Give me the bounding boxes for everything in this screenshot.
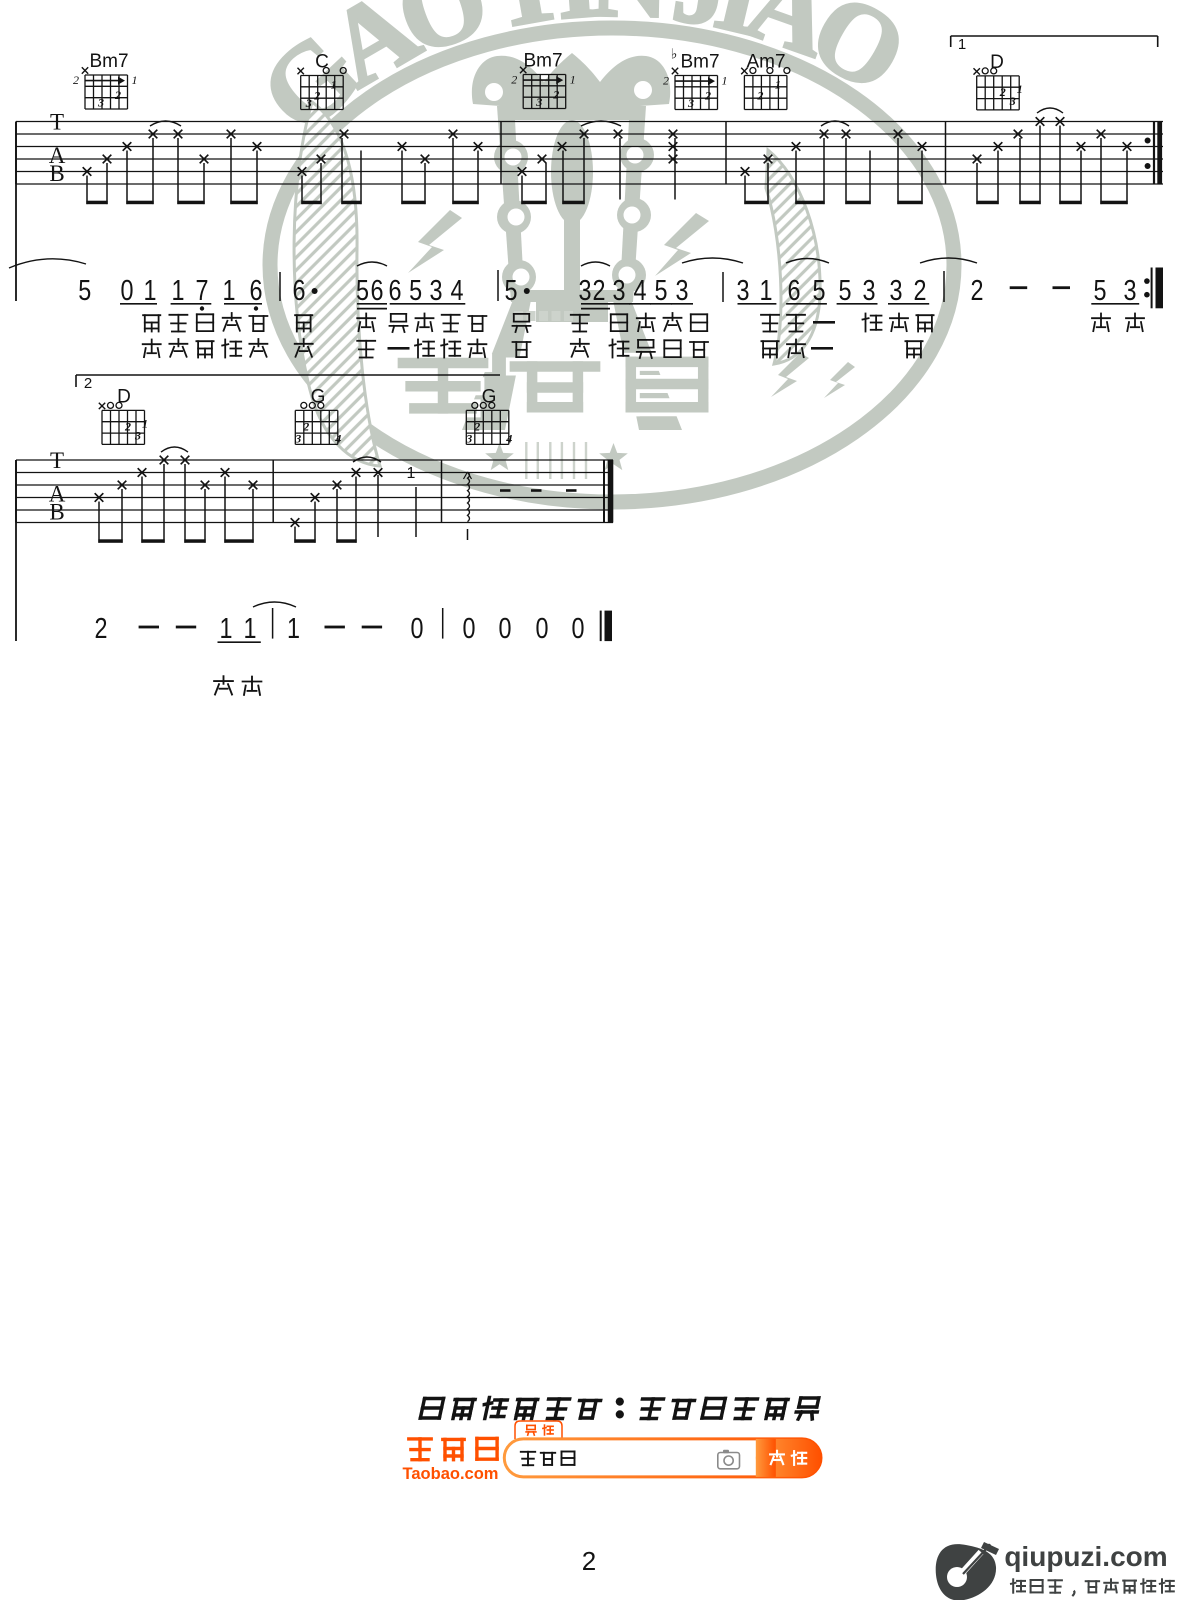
svg-text:4: 4: [505, 431, 512, 445]
svg-text:6: 6: [250, 275, 263, 307]
svg-text:2: 2: [971, 275, 984, 307]
svg-text:1: 1: [172, 275, 185, 307]
svg-text:3: 3: [863, 275, 876, 307]
svg-text:1: 1: [244, 613, 257, 645]
svg-text:4: 4: [451, 275, 464, 307]
svg-text:1: 1: [570, 73, 576, 87]
svg-text:5: 5: [839, 275, 852, 307]
svg-text:3: 3: [737, 275, 750, 307]
svg-text:1: 1: [331, 78, 337, 92]
svg-text:6: 6: [371, 275, 384, 307]
svg-text:2: 2: [95, 613, 108, 645]
svg-text:5: 5: [655, 275, 668, 307]
svg-text:4: 4: [634, 275, 647, 307]
svg-text:2: 2: [73, 73, 79, 87]
svg-text:0: 0: [572, 613, 585, 645]
svg-text:1: 1: [407, 465, 416, 482]
svg-text:3: 3: [97, 96, 104, 110]
svg-text:3: 3: [1124, 275, 1137, 307]
svg-text:1: 1: [1017, 82, 1023, 96]
svg-text:3: 3: [579, 275, 592, 307]
svg-text:1: 1: [760, 275, 773, 307]
svg-text:5: 5: [409, 275, 422, 307]
svg-text:3: 3: [430, 275, 443, 307]
svg-text:7: 7: [196, 275, 209, 307]
svg-text:2: 2: [473, 419, 480, 433]
svg-text:4: 4: [334, 431, 341, 445]
svg-text:♭: ♭: [671, 46, 678, 62]
svg-text:0: 0: [499, 613, 512, 645]
svg-text:6: 6: [389, 275, 402, 307]
svg-text:2: 2: [302, 419, 309, 433]
svg-text:2: 2: [582, 1546, 596, 1576]
svg-text:2: 2: [756, 89, 763, 103]
svg-text:1: 1: [775, 78, 781, 92]
svg-text:6: 6: [788, 275, 801, 307]
svg-text:D: D: [117, 386, 131, 407]
svg-text:Taobao.com: Taobao.com: [403, 1465, 499, 1483]
svg-text:Bm7: Bm7: [523, 51, 562, 72]
svg-text:2: 2: [552, 88, 559, 102]
svg-text:2: 2: [999, 85, 1006, 99]
svg-text:1: 1: [144, 275, 157, 307]
svg-text:Bm7: Bm7: [89, 51, 128, 72]
svg-text:3: 3: [465, 431, 472, 445]
svg-text:0: 0: [121, 275, 134, 307]
svg-text:3: 3: [613, 275, 626, 307]
svg-text:3: 3: [294, 431, 301, 445]
svg-text:2: 2: [593, 275, 606, 307]
svg-text:2: 2: [511, 73, 517, 87]
svg-text:1: 1: [722, 74, 728, 88]
svg-text:2: 2: [914, 275, 927, 307]
svg-text:3: 3: [305, 96, 312, 110]
svg-text:3: 3: [687, 96, 694, 110]
svg-text:1: 1: [958, 36, 966, 53]
svg-text:1: 1: [132, 73, 138, 87]
svg-text:3: 3: [134, 428, 141, 442]
svg-text:5: 5: [813, 275, 826, 307]
svg-text:T: T: [50, 110, 64, 135]
svg-text:B: B: [49, 161, 64, 186]
svg-text:5: 5: [356, 275, 369, 307]
svg-text:Bm7: Bm7: [680, 52, 719, 73]
svg-text:2: 2: [114, 88, 121, 102]
svg-text:5: 5: [1094, 275, 1107, 307]
svg-text:Am7: Am7: [746, 52, 785, 73]
svg-text:3: 3: [890, 275, 903, 307]
svg-text:1: 1: [142, 416, 148, 430]
svg-text:0: 0: [411, 613, 424, 645]
svg-text:2: 2: [124, 419, 131, 433]
svg-text:5: 5: [505, 275, 518, 307]
svg-text:1: 1: [220, 613, 233, 645]
svg-text:B: B: [49, 500, 64, 525]
svg-text:1: 1: [287, 613, 300, 645]
svg-text:T: T: [50, 448, 64, 473]
svg-text:0: 0: [536, 613, 549, 645]
svg-text:3: 3: [1009, 94, 1016, 108]
svg-text:0: 0: [463, 613, 476, 645]
svg-text:2: 2: [84, 375, 92, 392]
svg-text:1: 1: [223, 275, 236, 307]
svg-text:C: C: [315, 52, 329, 73]
svg-text:2: 2: [704, 89, 711, 103]
svg-text:6: 6: [293, 275, 306, 307]
svg-text:3: 3: [676, 275, 689, 307]
svg-text:3: 3: [535, 95, 542, 109]
svg-text:2: 2: [663, 74, 669, 88]
svg-text:qiupuzi.com: qiupuzi.com: [1004, 1541, 1167, 1572]
svg-text:5: 5: [78, 275, 91, 307]
svg-text:2: 2: [313, 89, 320, 103]
